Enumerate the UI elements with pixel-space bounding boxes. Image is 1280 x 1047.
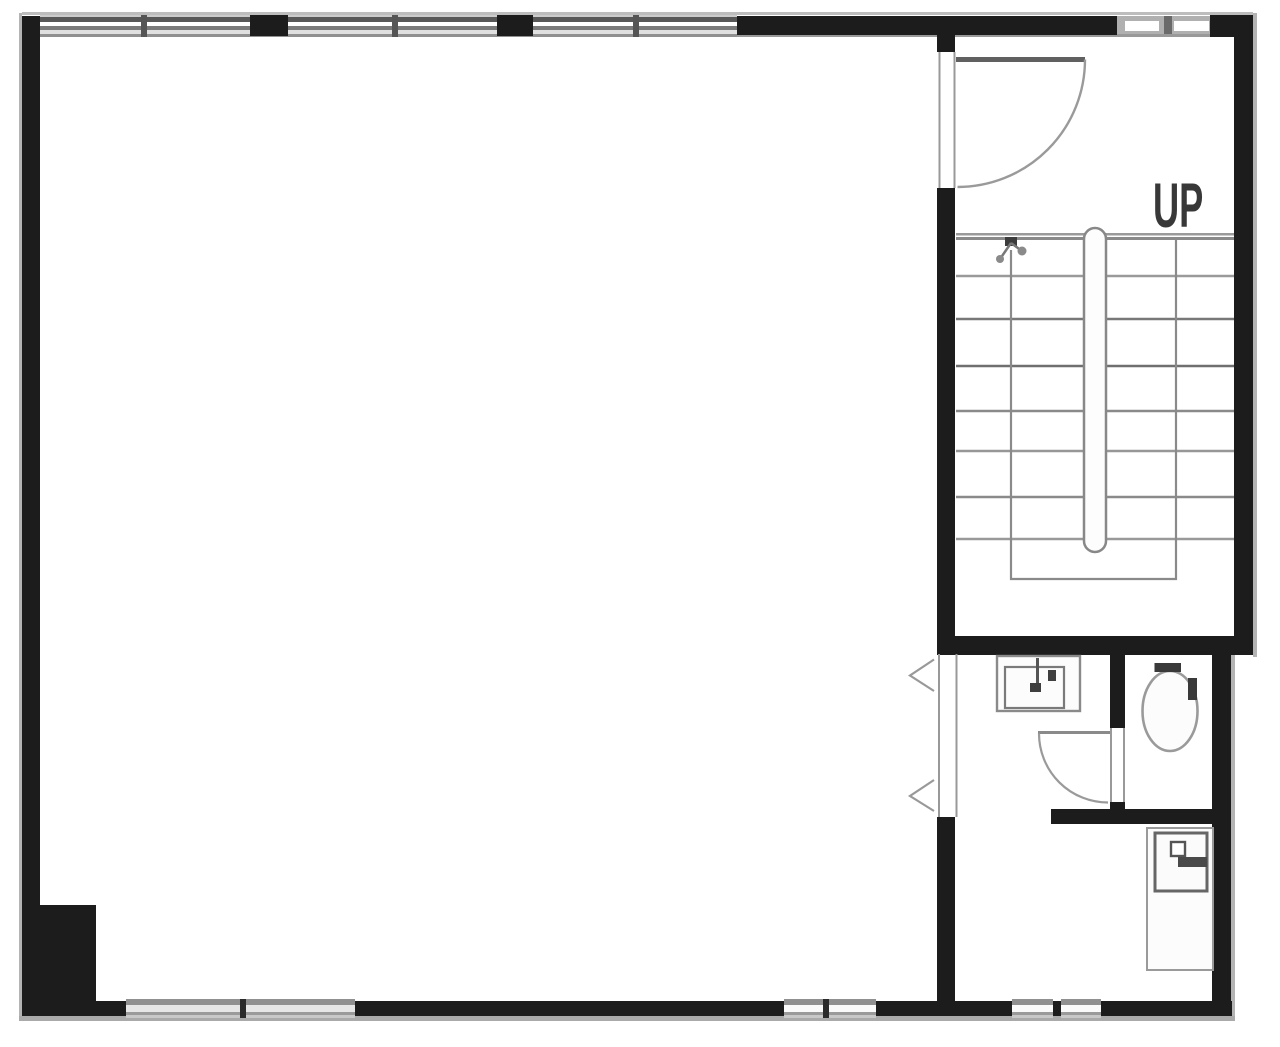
svg-text:UP: UP — [1153, 169, 1203, 240]
